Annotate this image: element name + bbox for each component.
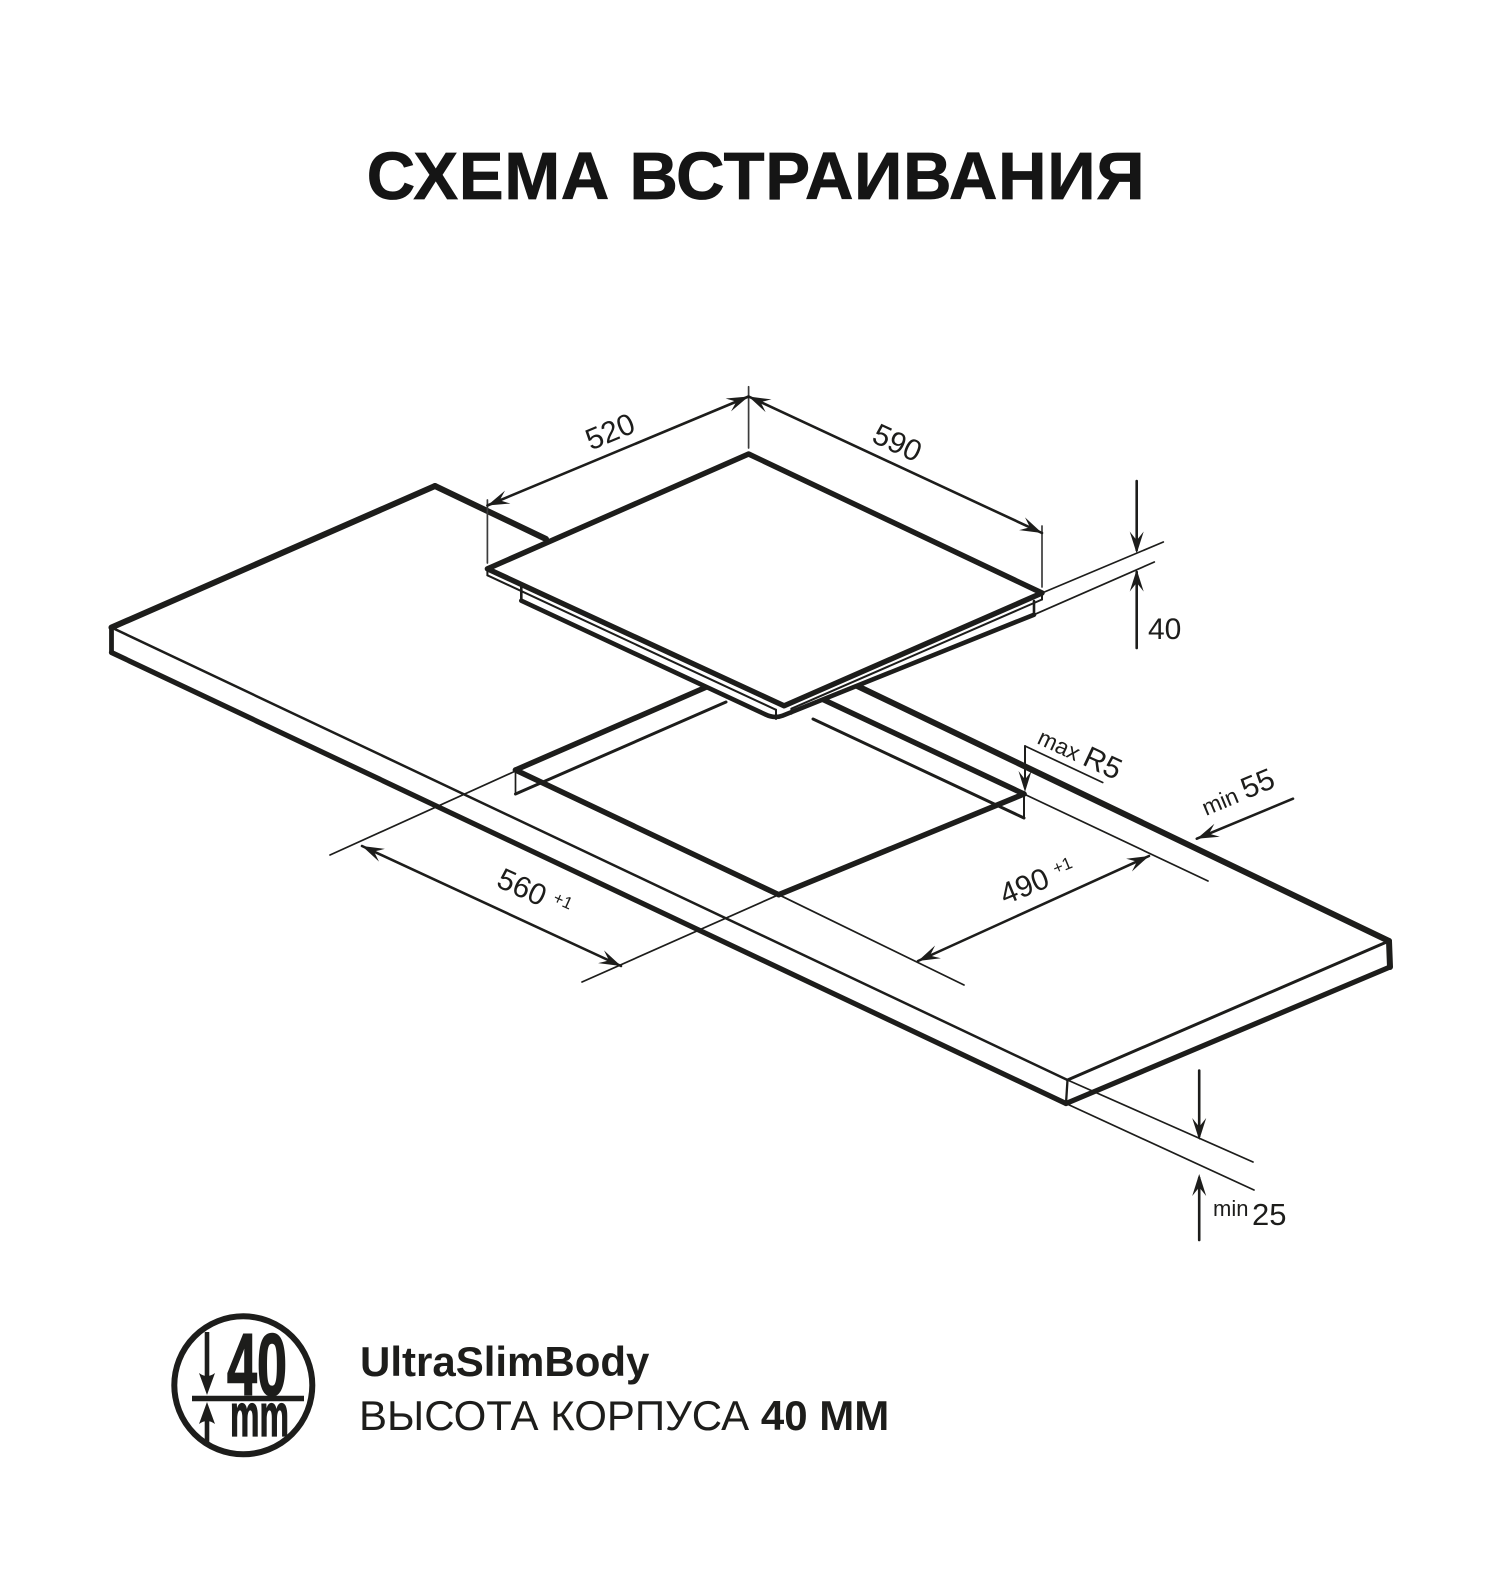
svg-text:25: 25: [1252, 1197, 1286, 1232]
svg-text:520: 520: [581, 407, 640, 457]
svg-text:590: 590: [867, 418, 926, 469]
svg-text:490 +1: 490 +1: [995, 851, 1079, 911]
svg-text:40: 40: [1148, 613, 1181, 646]
svg-text:mm: mm: [230, 1382, 289, 1449]
svg-text:min 55: min 55: [1196, 762, 1280, 822]
svg-text:560 +1: 560 +1: [492, 862, 576, 924]
svg-text:min: min: [1213, 1196, 1248, 1221]
